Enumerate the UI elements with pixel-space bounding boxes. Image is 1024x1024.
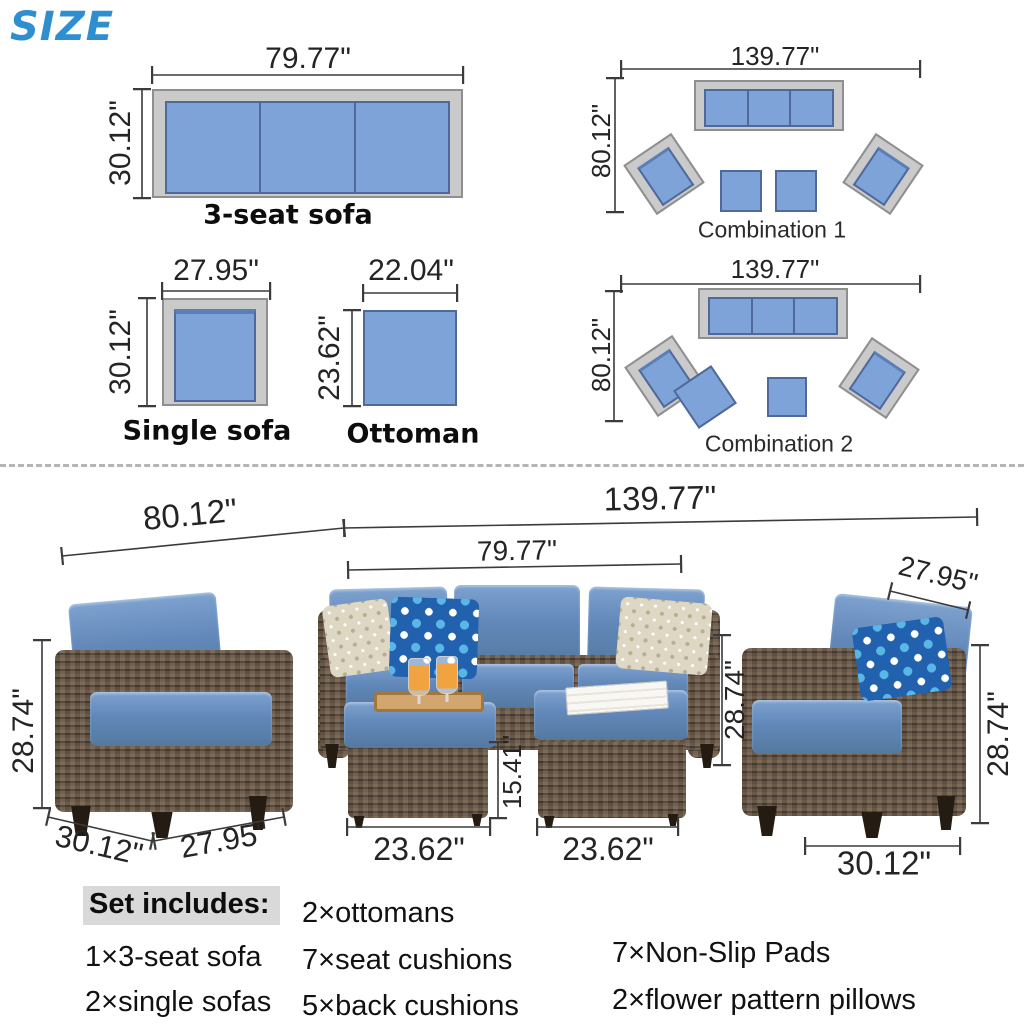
list-item: 7×Non-Slip Pads bbox=[612, 937, 830, 970]
juice-glass bbox=[408, 658, 430, 696]
ottoman-2-base bbox=[538, 742, 686, 818]
combo1-left-single bbox=[623, 133, 705, 215]
ottoman-leg bbox=[352, 816, 366, 828]
dim-ottoman-height: 15.41" bbox=[499, 735, 525, 809]
dim-ottoman2-width: 23.62" bbox=[562, 833, 653, 865]
dim-left-chair-depth: 30.12" bbox=[52, 820, 145, 870]
chair-leg bbox=[148, 812, 176, 838]
ottoman-leg bbox=[666, 814, 680, 826]
chair-leg bbox=[858, 812, 886, 838]
dim-photo-sofa-width: 79.77" bbox=[477, 536, 557, 565]
ottoman-1-base bbox=[348, 744, 488, 818]
dim-ottoman1-width: 23.62" bbox=[373, 833, 464, 865]
label-single-sofa: Single sofa bbox=[123, 418, 292, 445]
diagram-single-sofa bbox=[162, 298, 268, 406]
cushion bbox=[704, 89, 749, 127]
dim-ottoman-depth: 23.62" bbox=[315, 315, 345, 401]
set-includes-heading: Set includes: bbox=[83, 886, 280, 925]
combo1-ottoman-2 bbox=[775, 170, 817, 212]
cushion bbox=[708, 297, 753, 335]
dim-combo1-width: 139.77" bbox=[731, 43, 820, 69]
combo1-sofa bbox=[694, 80, 844, 131]
flower-pattern-pillow bbox=[851, 616, 952, 702]
dim-single-depth: 30.12" bbox=[106, 309, 136, 395]
dim-photo-arc-depth: 80.12" bbox=[141, 493, 238, 535]
diagram-3-seat-cushions bbox=[165, 101, 450, 194]
dim-3seat-width: 79.77" bbox=[265, 44, 351, 74]
label-combination-1: Combination 1 bbox=[698, 219, 846, 242]
beige-pattern-pillow bbox=[321, 598, 396, 678]
beige-pattern-pillow bbox=[615, 596, 713, 676]
flower-pattern-pillow bbox=[389, 596, 480, 679]
dim-single-width: 27.95" bbox=[173, 256, 259, 286]
size-infographic: SIZE bbox=[0, 0, 1024, 1024]
dim-photo-arc-width: 139.77" bbox=[603, 481, 716, 516]
label-combination-2: Combination 2 bbox=[705, 433, 853, 456]
ottoman-leg bbox=[470, 814, 484, 826]
cushion bbox=[793, 297, 838, 335]
label-ottoman: Ottoman bbox=[347, 421, 480, 448]
right-chair-seat-cushion bbox=[752, 700, 902, 754]
combo2-sofa-cushions bbox=[708, 297, 838, 335]
list-item: 7×seat cushions bbox=[302, 944, 512, 977]
cushion bbox=[637, 147, 694, 206]
cushion bbox=[165, 101, 261, 194]
juice-glass bbox=[436, 656, 458, 694]
cushion bbox=[174, 309, 256, 402]
left-chair-seat-cushion bbox=[90, 692, 272, 746]
ottoman-leg bbox=[542, 816, 556, 828]
label-3-seat-sofa: 3-seat sofa bbox=[203, 202, 373, 229]
list-item: 2×ottomans bbox=[302, 897, 454, 930]
list-item: 2×single sofas bbox=[85, 986, 271, 1019]
combo2-center-ottoman bbox=[767, 377, 807, 417]
cushion bbox=[751, 297, 796, 335]
diagram-ottoman bbox=[363, 310, 457, 406]
dim-left-chair-width: 27.95" bbox=[178, 817, 271, 863]
cushion bbox=[849, 351, 906, 410]
dim-3seat-depth: 30.12" bbox=[106, 100, 136, 186]
dim-right-chair-width: 27.95" bbox=[896, 552, 980, 599]
dashed-divider bbox=[0, 464, 1024, 467]
cushion bbox=[747, 89, 792, 127]
list-item: 5×back cushions bbox=[302, 990, 519, 1023]
cushion bbox=[853, 147, 910, 206]
cushion bbox=[354, 101, 450, 194]
dim-left-chair-height: 28.74" bbox=[9, 688, 39, 774]
page-title: SIZE bbox=[10, 4, 114, 50]
dim-combo2-width: 139.77" bbox=[731, 256, 820, 282]
combo1-ottoman-1 bbox=[720, 170, 762, 212]
combo1-right-single bbox=[842, 133, 924, 215]
dim-right-chair-depth: 30.12" bbox=[837, 847, 931, 880]
combo1-sofa-cushions bbox=[704, 89, 834, 127]
serving-tray bbox=[374, 692, 484, 712]
diagram-3-seat-sofa bbox=[152, 89, 463, 198]
dim-combo2-depth: 80.12" bbox=[588, 318, 614, 392]
list-item: 1×3-seat sofa bbox=[85, 941, 262, 974]
dim-combo1-depth: 80.12" bbox=[588, 104, 614, 178]
chair-leg bbox=[754, 806, 780, 836]
cushion bbox=[789, 89, 834, 127]
dim-ottoman-width: 22.04" bbox=[368, 256, 454, 286]
dim-right-chair-height: 28.74" bbox=[984, 691, 1014, 777]
cushion bbox=[259, 101, 355, 194]
dim-sofa-height: 28.74" bbox=[721, 660, 749, 740]
combo2-sofa bbox=[698, 288, 848, 339]
combo2-right-single bbox=[838, 337, 920, 419]
list-item: 2×flower pattern pillows bbox=[612, 984, 916, 1017]
